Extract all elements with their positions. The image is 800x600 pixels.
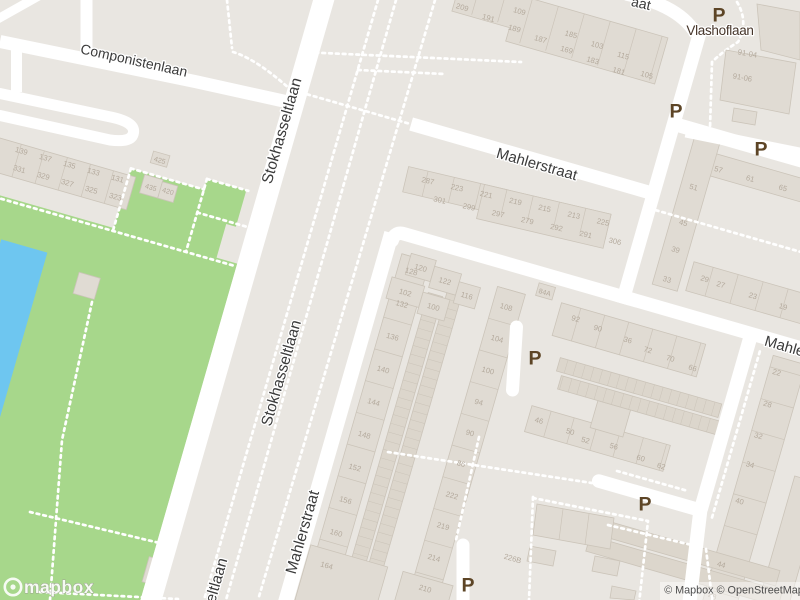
svg-text:P: P [712, 5, 725, 27]
svg-text:P: P [669, 101, 682, 123]
svg-text:© Mapbox © OpenStreetMap: © Mapbox © OpenStreetMap [664, 585, 800, 597]
svg-text:P: P [754, 139, 767, 161]
svg-text:P: P [638, 494, 651, 516]
svg-text:mapbox: mapbox [24, 577, 94, 597]
svg-text:P: P [528, 348, 541, 370]
svg-text:P: P [461, 575, 474, 597]
